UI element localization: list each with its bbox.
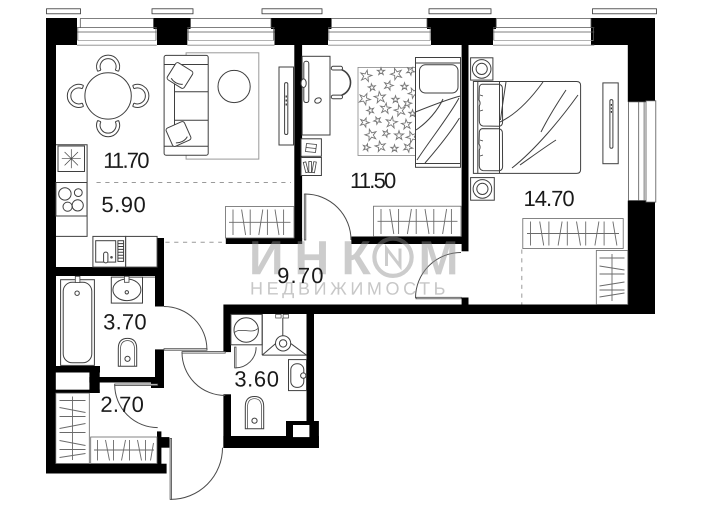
svg-text:9.70: 9.70: [277, 263, 325, 288]
svg-text:3.60: 3.60: [234, 366, 279, 391]
svg-text:2.70: 2.70: [100, 392, 144, 417]
svg-text:5.90: 5.90: [101, 192, 146, 217]
svg-text:11.70: 11.70: [103, 148, 149, 173]
svg-text:11.50: 11.50: [350, 168, 396, 193]
svg-text:14.70: 14.70: [523, 186, 574, 211]
svg-text:М: М: [418, 232, 458, 285]
svg-text:К: К: [341, 232, 371, 285]
svg-text:3.70: 3.70: [103, 309, 147, 334]
